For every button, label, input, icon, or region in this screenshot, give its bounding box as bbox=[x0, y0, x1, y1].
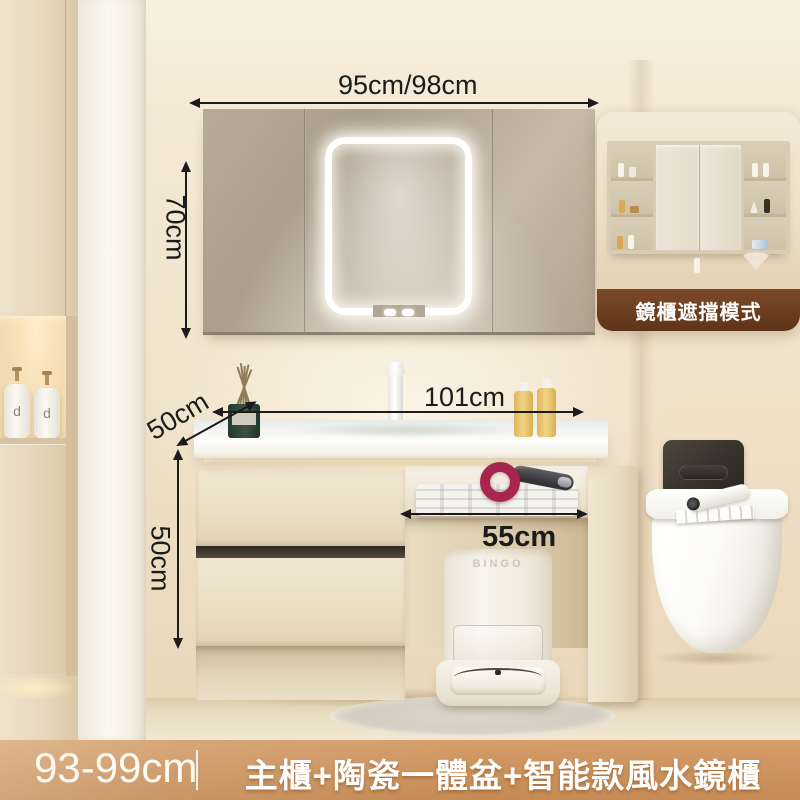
robot-vacuum-dock: BINGO bbox=[444, 549, 552, 667]
wall-hung-toilet bbox=[652, 507, 782, 653]
inset-closed-doors bbox=[656, 145, 741, 250]
dock-hatch bbox=[453, 625, 543, 663]
led-mirror-light bbox=[325, 137, 472, 315]
drawer-gap bbox=[196, 546, 405, 558]
bottle-label: d bbox=[43, 405, 51, 421]
bathroom-product-photo: d d 95cm/98cm 70cm 101cm 50cm 50cm 55cm bbox=[0, 0, 800, 800]
hair-dryer-icon bbox=[480, 462, 520, 502]
touch-button-icon bbox=[384, 309, 396, 316]
under-drawer-recess bbox=[196, 646, 405, 700]
inset-caption-banner: 鏡櫃遮擋模式 bbox=[597, 289, 800, 331]
cabinet-side-panel bbox=[66, 316, 78, 676]
footer-banner: 93-99cm 主櫃+陶瓷一體盆+智能款風水鏡櫃 bbox=[0, 740, 800, 800]
size-range-label: 93-99cm bbox=[34, 744, 197, 792]
dimension-basin-width: 101cm bbox=[424, 382, 505, 413]
dimension-arrow-open-shelf-width bbox=[402, 513, 586, 515]
dimension-arrow-top-width bbox=[191, 102, 597, 104]
dimension-open-shelf-width: 55cm bbox=[482, 521, 556, 554]
vanity-side-door bbox=[588, 466, 638, 702]
dock-base bbox=[436, 660, 560, 706]
footer-divider bbox=[196, 750, 198, 790]
dock-brand-label: BINGO bbox=[444, 558, 552, 570]
cabinet-door-seam bbox=[65, 0, 66, 318]
inset-shell-dish bbox=[743, 252, 769, 270]
vanity-drawer-bottom bbox=[196, 558, 405, 646]
mirror-touch-buttons bbox=[382, 309, 416, 316]
bottle-pump bbox=[45, 375, 49, 385]
inset-left-shelves bbox=[611, 145, 653, 250]
flush-button bbox=[679, 465, 728, 480]
toiletry-bottle: d bbox=[4, 384, 30, 438]
inset-card: 鏡櫃遮擋模式 bbox=[597, 112, 800, 331]
bottle-pump bbox=[15, 371, 19, 381]
mirror-door-seam bbox=[492, 109, 494, 332]
vanity-drawer-top bbox=[196, 470, 405, 546]
inset-photo bbox=[597, 112, 800, 289]
inset-bottle bbox=[694, 258, 700, 273]
dimension-top-width: 95cm/98cm bbox=[338, 70, 478, 101]
toiletry-bottle: d bbox=[34, 388, 60, 438]
robot-vacuum bbox=[450, 667, 546, 695]
inset-caption-text: 鏡櫃遮擋模式 bbox=[636, 296, 762, 325]
toe-kick-light bbox=[0, 676, 74, 700]
lower-cabinet-door bbox=[0, 444, 66, 674]
mirror-door-seam bbox=[304, 109, 306, 332]
inset-mirror-cabinet bbox=[607, 141, 790, 254]
faucet bbox=[388, 372, 403, 422]
dimension-arrow-cabinet-height bbox=[177, 451, 179, 647]
touch-button-icon bbox=[402, 309, 414, 316]
dimension-cabinet-height: 50cm bbox=[145, 514, 176, 604]
amber-soap-bottle bbox=[514, 391, 533, 437]
under-counter-light bbox=[198, 456, 602, 472]
dimension-arrow-basin-width bbox=[214, 411, 582, 413]
inset-right-shelves bbox=[744, 145, 786, 250]
bottle-label: d bbox=[13, 403, 21, 419]
dimension-arrow-mirror-height bbox=[185, 163, 187, 337]
product-title: 主櫃+陶瓷一體盆+智能款風水鏡櫃 bbox=[214, 749, 792, 797]
wall-pillar bbox=[78, 0, 146, 740]
mirror-cabinet bbox=[203, 109, 595, 335]
basin-recess bbox=[289, 423, 524, 438]
